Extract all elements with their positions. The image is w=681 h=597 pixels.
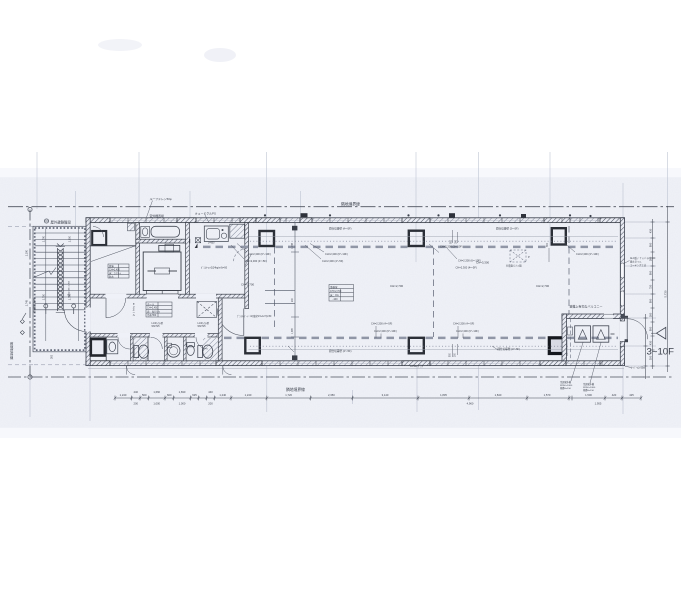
svg-text:L=900: L=900 <box>208 243 215 245</box>
svg-text:W950×D300: W950×D300 <box>560 384 573 387</box>
svg-text:1,000: 1,000 <box>153 402 160 406</box>
svg-text:1,240: 1,240 <box>120 393 127 397</box>
svg-text:1,190: 1,190 <box>26 249 29 256</box>
svg-text:600: 600 <box>167 393 172 397</box>
svg-text:CH=2,300 (3〜10F): CH=2,300 (3〜10F) <box>440 245 463 249</box>
svg-text:5,730: 5,730 <box>664 290 668 297</box>
svg-text:CH=2,700: CH=2,700 <box>536 284 549 288</box>
svg-text:260: 260 <box>649 256 653 261</box>
svg-text:W9/T25: W9/T25 <box>152 326 161 328</box>
svg-text:CH=2,300 (4〜5F): CH=2,300 (4〜5F) <box>371 322 392 326</box>
svg-text:200: 200 <box>208 402 213 406</box>
svg-text:300: 300 <box>649 355 653 360</box>
svg-text:CH=2,300 (6〜10F): CH=2,300 (6〜10F) <box>374 329 397 333</box>
svg-text:1,660: 1,660 <box>153 390 160 394</box>
svg-text:430: 430 <box>649 228 653 233</box>
svg-text:420: 420 <box>612 393 617 397</box>
svg-text:集合郵便受: 集合郵便受 <box>33 298 36 314</box>
svg-text:CH=2,300 (3〜10F): CH=2,300 (3〜10F) <box>576 252 599 256</box>
svg-text:1,955: 1,955 <box>595 402 602 406</box>
svg-text:巾木H60: 巾木H60 <box>147 313 157 317</box>
svg-text:800: 800 <box>649 242 653 247</box>
svg-text:800: 800 <box>649 326 653 331</box>
svg-text:CH=2,300 (6〜10F): CH=2,300 (6〜10F) <box>456 329 479 333</box>
svg-text:300: 300 <box>51 354 54 359</box>
svg-text:ｵｰﾊﾞｰﾌﾛｰ50φ: ｵｰﾊﾞｰﾌﾛｰ50φ <box>631 366 645 370</box>
svg-text:1,240: 1,240 <box>219 393 226 397</box>
svg-text:防水: 防水 <box>109 275 114 279</box>
svg-text:1,720: 1,720 <box>285 393 292 397</box>
svg-text:W9/T25: W9/T25 <box>198 326 207 328</box>
svg-text:床：OA: 床：OA <box>330 293 339 297</box>
svg-text:ACW+ｶﾞﾗｽ: ACW+ｶﾞﾗｽ <box>410 364 423 368</box>
svg-text:1,745: 1,745 <box>292 242 294 248</box>
svg-text:キュービクルPS: キュービクルPS <box>195 210 216 215</box>
svg-text:1,345: 1,345 <box>292 328 294 334</box>
svg-text:間仕切垂壁 (4〜5F): 間仕切垂壁 (4〜5F) <box>329 349 352 353</box>
svg-text:625: 625 <box>192 393 197 397</box>
svg-text:事務室: 事務室 <box>330 285 338 289</box>
svg-text:CH=2,700: CH=2,700 <box>390 284 403 288</box>
svg-text:440: 440 <box>208 390 213 394</box>
svg-text:1,690: 1,690 <box>179 390 186 394</box>
svg-text:500: 500 <box>142 393 147 397</box>
svg-text:床：ｺﾝｸﾘｰﾄ: 床：ｺﾝｸﾘｰﾄ <box>109 271 122 275</box>
svg-text:440: 440 <box>133 390 138 394</box>
svg-text:CH=2,700: CH=2,700 <box>241 283 254 287</box>
svg-text:1,000: 1,000 <box>179 402 186 406</box>
svg-text:CH=2,450: CH=2,450 <box>147 307 159 310</box>
svg-text:-100: -100 <box>330 298 338 301</box>
svg-text:CH=2,300 (4〜5F): CH=2,300 (4〜5F) <box>453 322 474 326</box>
svg-text:1,835: 1,835 <box>440 393 447 397</box>
svg-text:間仕切垂壁 (4〜5F): 間仕切垂壁 (4〜5F) <box>329 227 352 231</box>
svg-text:2,350: 2,350 <box>328 393 335 397</box>
svg-text:避難上有効なバルコニー: 避難上有効なバルコニー <box>570 303 603 308</box>
svg-text:CH=2,300 (6〜10F): CH=2,300 (6〜10F) <box>248 252 271 256</box>
svg-text:ＥＶホール: ＥＶホール <box>133 303 136 317</box>
svg-text:CH=2,300 (4〜5F): CH=2,300 (4〜5F) <box>322 259 343 263</box>
svg-text:ホール: ホール <box>147 302 155 306</box>
svg-text:CH=2,300 (6〜10F): CH=2,300 (6〜10F) <box>458 259 481 263</box>
svg-text:1,050: 1,050 <box>69 235 72 242</box>
svg-text:ｸﾞﾗｽｳｰﾙ×2(24kg/m³)t=50: ｸﾞﾗｽｳｰﾙ×2(24kg/m³)t=50 <box>201 265 228 269</box>
svg-text:1,570: 1,570 <box>544 393 551 397</box>
svg-text:CH=2,700: CH=2,700 <box>330 290 342 293</box>
svg-text:1,745: 1,745 <box>26 299 29 306</box>
svg-text:1,840: 1,840 <box>495 393 502 397</box>
svg-text:床：長尺ｼｰﾄ: 床：長尺ｼｰﾄ <box>147 309 161 313</box>
svg-text:1,750: 1,750 <box>43 293 46 300</box>
svg-text:CH=2,300 (4〜5F): CH=2,300 (4〜5F) <box>456 266 477 270</box>
svg-text:800: 800 <box>649 270 653 275</box>
svg-text:CH=2,300 (6〜10F): CH=2,300 (6〜10F) <box>325 252 348 256</box>
svg-text:260: 260 <box>649 312 653 317</box>
svg-text:425: 425 <box>629 393 634 397</box>
svg-text:750: 750 <box>649 284 653 289</box>
svg-text:倉庫: 倉庫 <box>109 264 114 268</box>
svg-text:間仕切垂壁 (3〜5F): 間仕切垂壁 (3〜5F) <box>498 347 521 351</box>
svg-text:室外機置場: 室外機置場 <box>150 213 165 218</box>
svg-text:800: 800 <box>649 298 653 303</box>
svg-text:屋外避難階段: 屋外避難階段 <box>51 219 72 224</box>
svg-text:W950×D300: W950×D300 <box>583 386 596 389</box>
svg-text:CH=2,400: CH=2,400 <box>109 268 121 271</box>
svg-text:430: 430 <box>649 340 653 345</box>
svg-text:隣地境界線: 隣地境界線 <box>341 202 360 207</box>
svg-text:1,790: 1,790 <box>43 235 46 242</box>
svg-text:CH=2,300 (4〜5F): CH=2,300 (4〜5F) <box>246 259 267 263</box>
svg-text:1,500: 1,500 <box>585 393 592 397</box>
svg-text:ルーフドレン50φ: ルーフドレン50φ <box>150 196 172 201</box>
svg-text:1,240: 1,240 <box>245 393 252 397</box>
svg-text:4,960: 4,960 <box>467 402 474 406</box>
svg-text:間仕切垂壁 (3〜5F): 間仕切垂壁 (3〜5F) <box>496 227 519 231</box>
svg-text:3,140: 3,140 <box>382 393 389 397</box>
svg-text:200: 200 <box>133 402 138 406</box>
svg-text:隣地境界線: 隣地境界線 <box>286 387 305 392</box>
svg-text:P: P <box>528 255 530 259</box>
